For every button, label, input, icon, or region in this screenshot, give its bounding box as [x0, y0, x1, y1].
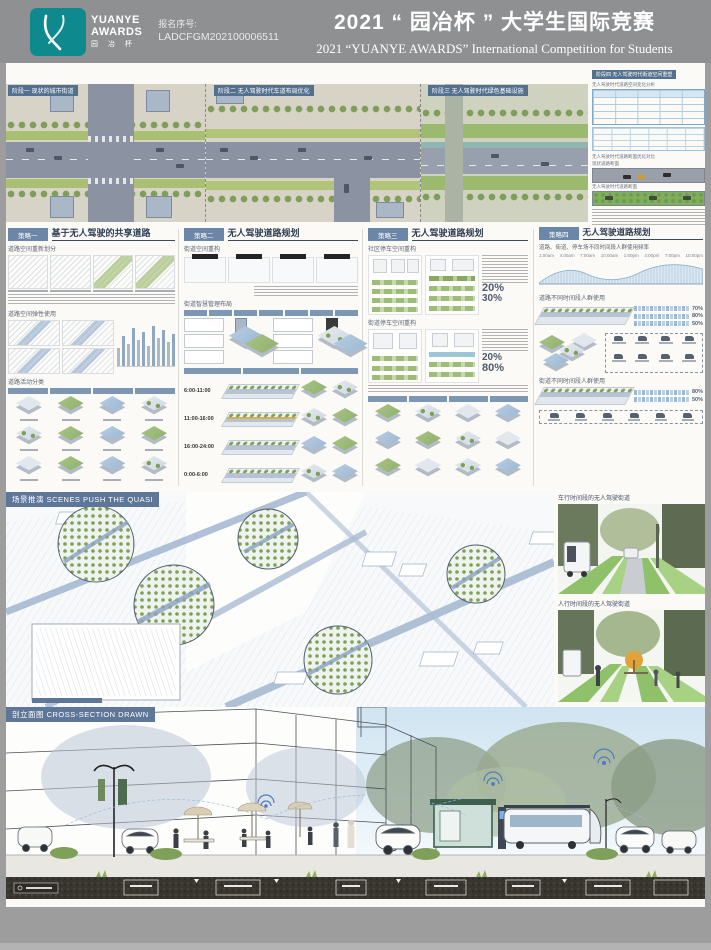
- flow-box: [184, 318, 224, 332]
- iso-tile: [368, 458, 408, 480]
- diagram-thumb: [8, 255, 48, 289]
- iso-tile: [8, 426, 50, 451]
- iso-tile: [368, 431, 408, 453]
- iso-tile: [133, 396, 175, 421]
- competition-titles: 2021 “ 园冶杯 ” 大学生国际竞赛 2021 “YUANYE AWARDS…: [290, 6, 699, 57]
- usage-percent: 50%: [692, 397, 703, 403]
- stat-30: 30%: [482, 294, 528, 304]
- iso-tile: [133, 456, 175, 481]
- diagram-thumb: [62, 320, 114, 346]
- iso-tile: [50, 396, 92, 421]
- strategy1-sec3-title: 道路活动分类: [8, 377, 175, 386]
- time-slot-label: 11:00-16:00: [184, 416, 220, 422]
- parking-axon: [425, 255, 479, 315]
- block-axon-cluster: [539, 333, 601, 373]
- render-pedestrian-street: [558, 610, 705, 702]
- time-slot-row: 0:00-6:00: [184, 464, 358, 486]
- road-space-table: [592, 89, 705, 125]
- time-slot-label: 16:00-24:00: [184, 444, 220, 450]
- iso-tile: [448, 431, 488, 453]
- vehicle-diagram: [228, 257, 270, 283]
- strategy3-header: 策略三 无人驾驶道路规划: [368, 226, 528, 241]
- street-strip: [221, 468, 300, 483]
- time-slot-row: 11:00-16:00: [184, 408, 358, 430]
- iso-tile: [301, 436, 327, 458]
- masterplan-analysis-column: 阶段四 无人驾驶时代街道空间重塑 无人驾驶时代道路空间变化分析 无人驾驶时代道路…: [592, 63, 705, 201]
- vehicle-diagram: [184, 257, 226, 283]
- future-road-section: [592, 191, 705, 206]
- analysis-table-title: 无人驾驶时代道路空间变化分析: [592, 82, 705, 88]
- logo-line1: YUANYE: [91, 15, 142, 26]
- diagram-thumb: [8, 348, 60, 374]
- strategy3-sec2-title: 街道停车空间重构: [368, 318, 528, 327]
- iso-tile: [488, 458, 528, 480]
- render-column: 车行时间段的无人驾驶街道 人行时间段的无: [558, 492, 705, 702]
- axon-drawing: [6, 492, 554, 707]
- usage-percent: 70%: [692, 306, 703, 312]
- time-slot-row: 16:00-24:00: [184, 436, 358, 458]
- vehicle-thumbnails: [184, 257, 358, 283]
- strategy4-header: 策略四 无人驾驶道路规划: [539, 226, 703, 240]
- strategy2-header: 策略二 无人驾驶道路规划: [184, 226, 358, 241]
- mode-icon: [622, 413, 647, 421]
- mode-time-block: [539, 333, 703, 373]
- strategy4-tag: 策略四: [539, 227, 579, 240]
- cross-section-banner: 剖立面图 CROSS-SECTION DRAWN: [6, 707, 155, 722]
- smart-system-tags: [184, 310, 358, 316]
- street-strip-axon: [534, 387, 635, 405]
- diagram-thumb: [50, 255, 90, 289]
- usage-dot-bars: 70% 80% 50%: [634, 304, 703, 328]
- phase4-label: 阶段四 无人驾驶时代街道空间重塑: [592, 70, 676, 79]
- smart-street-scene: [227, 318, 270, 360]
- wave-chart-ticks: 1:00am 4:00am 7:00am 10:00am 1:00pm 4:00…: [539, 253, 703, 258]
- smart-system-flow: [184, 318, 358, 366]
- phase3-label: 阶段三 无人驾驶时代绿色基础设施: [428, 85, 528, 96]
- iso-tile: [368, 404, 408, 426]
- iso-tile: [448, 458, 488, 480]
- cross-section-view: 剖立面图 CROSS-SECTION DRAWN: [6, 707, 705, 903]
- usage-percent: 80%: [692, 313, 703, 319]
- iso-tile: [301, 380, 327, 402]
- iso-tile: [8, 456, 50, 481]
- iso-tile: [332, 380, 358, 402]
- vehicle-note: [254, 286, 358, 296]
- title-chinese: 2021 “ 园冶杯 ” 大学生国际竞赛: [290, 6, 699, 36]
- iso-tile: [408, 404, 448, 426]
- usage-percent: 80%: [692, 389, 703, 395]
- mode-icon-car: [632, 354, 654, 370]
- iso-tile: [301, 408, 327, 430]
- iso-tile: [332, 436, 358, 458]
- vehicle-diagram: [272, 257, 314, 283]
- diagram-thumb: [62, 348, 114, 374]
- usage-percent: 50%: [692, 321, 703, 327]
- section-compare-title: 无人驾驶时代道路断面优化对比: [592, 154, 705, 160]
- smart-street-scene: [316, 318, 359, 360]
- strategy3-tag: 策略三: [368, 228, 408, 241]
- flow-box: [184, 350, 224, 364]
- strategy3-paragraph: [368, 385, 528, 394]
- mode-icon: [595, 413, 620, 421]
- mode-time-table: [605, 333, 703, 373]
- flexible-use-block: [8, 320, 175, 374]
- road-strip-axon: [534, 307, 635, 325]
- iso-tile: [92, 396, 134, 421]
- strategy1-tag: 策略一: [8, 228, 48, 241]
- masterplan-phase2: [206, 84, 420, 222]
- tick: 4:00pm: [644, 253, 659, 258]
- iso-tile: [50, 456, 92, 481]
- strategy4-sec1-title: 道路、街道、停车场不同时间段人群使用频率: [539, 243, 703, 251]
- strategy4-sec3-title: 街道不同时间段人群使用: [539, 376, 703, 385]
- mode-icon-walk: [679, 336, 701, 352]
- iso-tile: [8, 396, 50, 421]
- logo-line3: 园 冶 杯: [91, 41, 142, 48]
- tick: 4:00am: [560, 253, 575, 258]
- strategy1-header: 策略一 基于无人驾驶的共享道路: [8, 226, 175, 241]
- flow-box: [184, 334, 224, 348]
- strategy3-title: 无人驾驶道路规划: [412, 226, 529, 241]
- analysis-paragraph: [592, 209, 705, 225]
- strategy4-panel: 策略四 无人驾驶道路规划 道路、街道、停车场不同时间段人群使用频率 1:00am…: [537, 225, 705, 490]
- mode-icon: [542, 413, 567, 421]
- iso-tile: [408, 431, 448, 453]
- existing-road-section: [592, 168, 705, 183]
- logo-wordmark: YUANYE AWARDS 园 冶 杯: [91, 15, 142, 48]
- strategy1-paragraph: [8, 294, 175, 306]
- mode-icon: [649, 413, 674, 421]
- time-slot-row: 6:00-11:00: [184, 380, 358, 402]
- mode-icon: [675, 413, 700, 421]
- street-strip: [221, 384, 300, 399]
- street-strip: [221, 440, 300, 455]
- iso-tile: [448, 404, 488, 426]
- diagram-thumb: [93, 255, 133, 289]
- poster-body: 阶段一 现状的城市街道 阶段二 无人驾驶时代车道布局优化 阶段三 无人驾驶时代绿…: [6, 63, 705, 907]
- mode-icon: [569, 413, 594, 421]
- strategy2-title: 无人驾驶道路规划: [228, 226, 359, 241]
- strategy1-panel: 策略一 基于无人驾驶的共享道路 道路空间重新划分 道路空间弹性使用: [6, 225, 177, 490]
- diagram-thumb: [135, 255, 175, 289]
- city-axonometric: [6, 492, 554, 707]
- phase1-label: 阶段一 现状的城市街道: [8, 85, 78, 96]
- activity-category-tags: [8, 388, 175, 394]
- cross-section-drawing: [6, 707, 705, 899]
- tick: 7:00pm: [665, 253, 680, 258]
- footer-strip: [0, 943, 711, 950]
- road-usage-block: 70% 80% 50%: [539, 304, 703, 328]
- masterplan-cross-road: [88, 84, 134, 222]
- strategy2-sec1-title: 街道空间重构: [184, 244, 358, 253]
- strategy2-tag: 策略二: [184, 228, 224, 241]
- iso-tile: [488, 431, 528, 453]
- yuanye-logo: [30, 8, 86, 56]
- vehicle-diagram: [316, 257, 358, 283]
- scenes-section: 场景推演 SCENES PUSH THE QUASI 车行时间段的无人驾驶街道: [6, 492, 705, 707]
- flow-box: [273, 318, 313, 332]
- iso-tile: [301, 464, 327, 486]
- strategy1-title: 基于无人驾驶的共享道路: [52, 226, 176, 241]
- registration-label: 报名序号:: [158, 19, 279, 30]
- phase2-label: 阶段二 无人驾驶时代车道布局优化: [214, 85, 314, 96]
- future-section-label: 无人驾驶时代道路断面: [592, 184, 705, 190]
- iso-tile: [488, 404, 528, 426]
- tick: 10:00pm: [685, 253, 703, 258]
- tick: 1:00am: [539, 253, 554, 258]
- parking-note: [482, 329, 528, 353]
- strategy-row: 策略一 基于无人驾驶的共享道路 道路空间重新划分 道路空间弹性使用: [6, 225, 705, 490]
- parking-type-tags: [368, 396, 528, 402]
- community-parking-block: 20% 30%: [368, 255, 528, 315]
- road-redivision-thumbnails: [8, 255, 175, 289]
- iso-tile: [332, 464, 358, 486]
- masterplan-phase3: [421, 84, 588, 222]
- render2-caption: 人行时间段的无人驾驶街道: [558, 599, 705, 608]
- strategy1-sec1-title: 道路空间重新划分: [8, 244, 175, 253]
- activity-tile-grid: [8, 396, 175, 481]
- iso-tile: [408, 458, 448, 480]
- logo-line2: AWARDS: [91, 27, 142, 38]
- render1-caption: 车行时间段的无人驾驶街道: [558, 493, 705, 502]
- mode-icon-shuttle: [655, 354, 677, 370]
- parking-axon: [368, 329, 422, 383]
- strategy2-sec2-title: 街道智慧管理布局: [184, 299, 358, 308]
- iso-tile: [133, 426, 175, 451]
- strategy3-sec1-title: 社区停车空间重构: [368, 244, 528, 253]
- usage-wave-chart: [539, 259, 703, 285]
- time-use-bar-chart: [117, 320, 175, 367]
- street-usage-block: 80% 50%: [539, 387, 703, 405]
- mode-icon-shuttle: [655, 336, 677, 352]
- competition-poster: YUANYE AWARDS 园 冶 杯 报名序号: LADCFGM2021000…: [0, 0, 711, 950]
- tick: 7:00am: [580, 253, 595, 258]
- timeuse-header-tags: [184, 368, 358, 374]
- mode-icon-bus: [608, 354, 630, 370]
- diagram-thumb: [8, 320, 60, 346]
- registration-number: 报名序号: LADCFGM202100006511: [158, 19, 279, 43]
- time-slot-label: 0:00-6:00: [184, 472, 220, 478]
- strategy3-panel: 策略三 无人驾驶道路规划 社区停车空间重构: [366, 225, 530, 490]
- masterplan-strip: 阶段一 现状的城市街道 阶段二 无人驾驶时代车道布局优化 阶段三 无人驾驶时代绿…: [6, 84, 588, 222]
- registration-value: LADCFGM202100006511: [158, 31, 279, 44]
- usage-dot-bars: 80% 50%: [634, 388, 703, 405]
- tick: 1:00pm: [624, 253, 639, 258]
- road-space-table-2: [592, 127, 705, 151]
- mode-icon-walk: [679, 354, 701, 370]
- street-parking-block: 20% 80%: [368, 329, 528, 383]
- mode-icon-car: [632, 336, 654, 352]
- strategy1-sec2-title: 道路空间弹性使用: [8, 309, 175, 318]
- parking-axon: [425, 329, 479, 383]
- iso-tile: [50, 426, 92, 451]
- parking-axon: [368, 255, 422, 315]
- parking-time-table: [539, 410, 703, 424]
- stat-80: 80%: [482, 363, 528, 374]
- time-slot-label: 6:00-11:00: [184, 388, 220, 394]
- parking-tile-grid: [368, 404, 528, 480]
- street-strip: [221, 412, 300, 427]
- parking-note: [482, 255, 528, 283]
- iso-tile: [92, 426, 134, 451]
- tick: 10:00am: [601, 253, 619, 258]
- strategy4-sec2-title: 道路不同时间段人群使用: [539, 293, 703, 302]
- masterplan-phase1: [6, 84, 205, 222]
- scenes-banner: 场景推演 SCENES PUSH THE QUASI: [6, 492, 159, 507]
- header-band: YUANYE AWARDS 园 冶 杯 报名序号: LADCFGM2021000…: [0, 0, 711, 63]
- mode-icon-bus: [608, 336, 630, 352]
- iso-tile: [92, 456, 134, 481]
- strategy2-panel: 策略二 无人驾驶道路规划 街道空间重构 街道智慧管理布局: [182, 225, 360, 490]
- strategy4-title: 无人驾驶道路规划: [583, 226, 704, 240]
- title-english: 2021 “YUANYE AWARDS” International Compe…: [290, 41, 699, 57]
- render-vehicle-street: [558, 504, 705, 594]
- existing-section-label: 现状道路断面: [592, 161, 705, 167]
- iso-tile: [332, 408, 358, 430]
- logo-leaf-icon: [30, 8, 86, 56]
